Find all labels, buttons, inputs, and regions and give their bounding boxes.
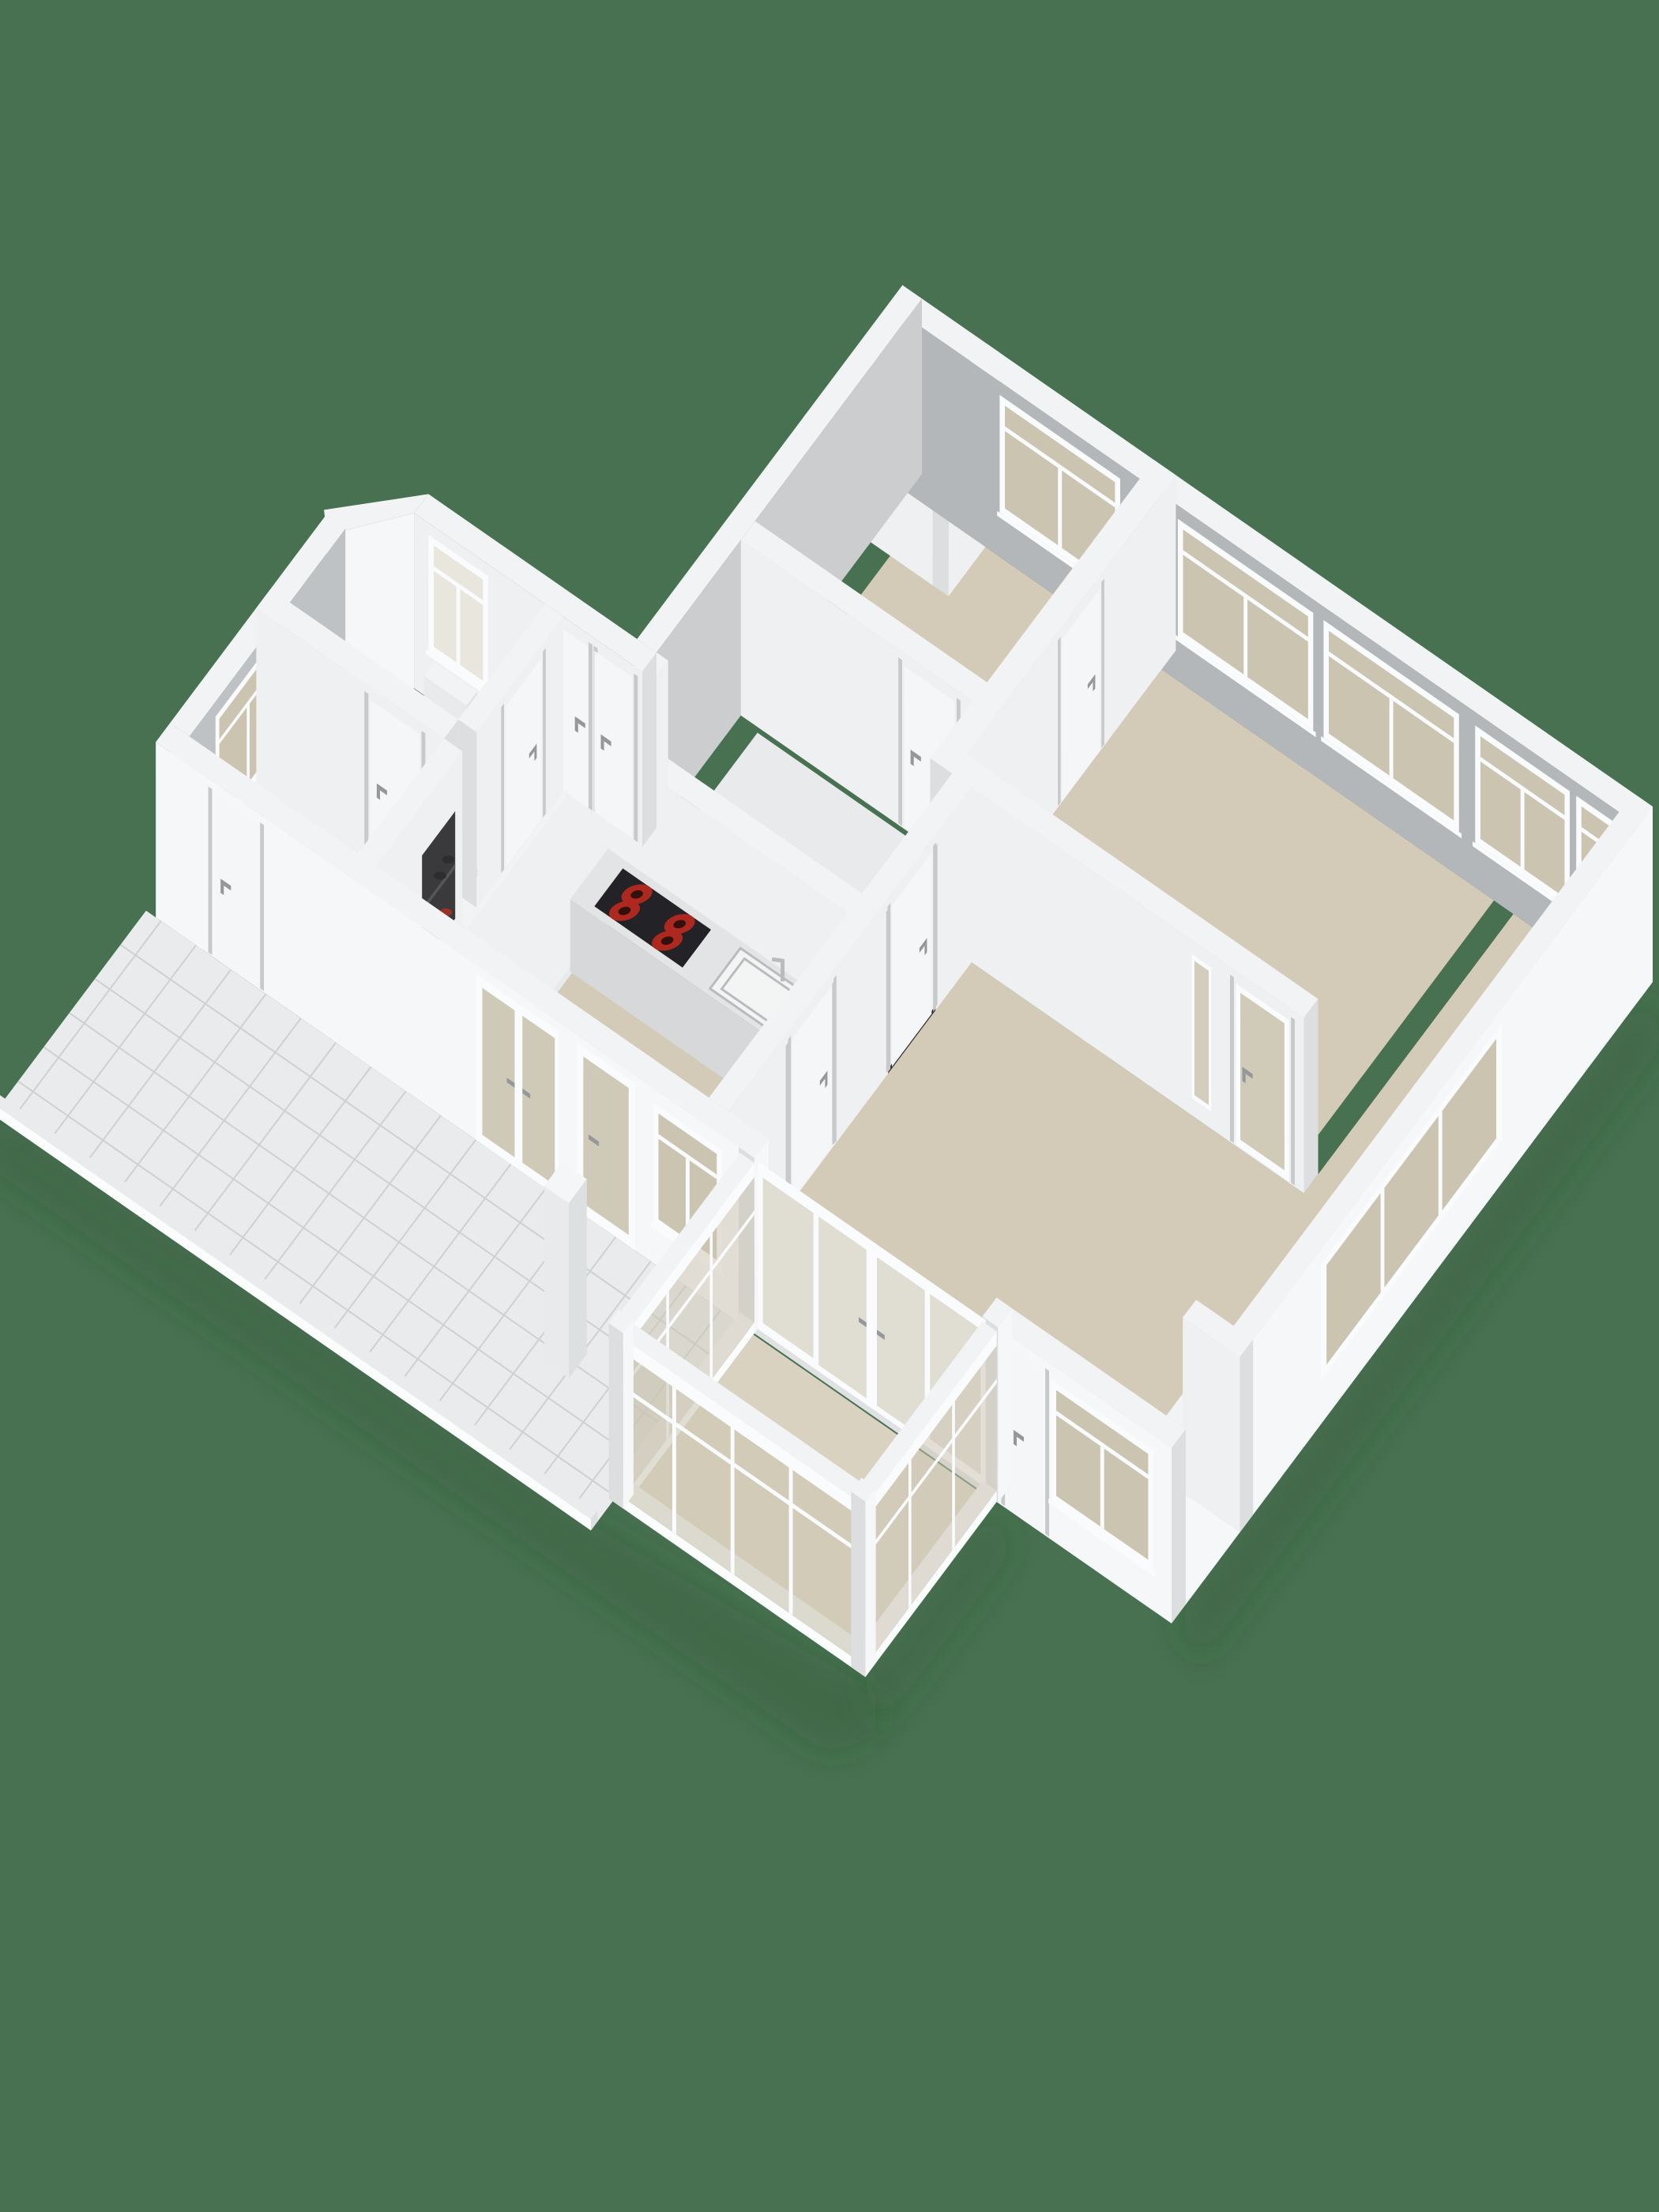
wall-face (623, 1319, 634, 1509)
door-glass (1240, 993, 1285, 1171)
terrace-pillar (544, 1162, 587, 1379)
door-jamb (364, 691, 368, 860)
window-mullion (1100, 1446, 1104, 1529)
window-mullion (246, 704, 250, 785)
door-jamb (260, 822, 264, 991)
sunroom-mullion (710, 1232, 713, 1382)
wall-end (642, 653, 656, 847)
door-jamb (1058, 637, 1061, 807)
sunroom-mullion (952, 1401, 955, 1551)
door-jamb (898, 657, 902, 826)
window-mullion (1243, 597, 1247, 678)
wall-face (544, 1186, 569, 1379)
window-mullion (1390, 698, 1394, 778)
wall-end (1240, 1339, 1253, 1532)
wall-end (609, 1323, 623, 1509)
door-jamb (501, 704, 504, 874)
door-jamb (589, 642, 592, 811)
door-panel (1007, 1346, 1044, 1533)
window-mullion (1521, 789, 1525, 869)
door-jamb (543, 648, 546, 818)
door-panel (594, 651, 632, 838)
shoe-icon (442, 856, 455, 863)
kitchen-french-door-glass (483, 988, 515, 1158)
floorplan-3d-render (0, 0, 1659, 2212)
sunroom-mullion (731, 1427, 735, 1574)
sidelight-glass (1194, 961, 1209, 1105)
door-jamb (1101, 578, 1104, 748)
door-jamb (1291, 1017, 1295, 1185)
door-jamb (1230, 975, 1234, 1143)
door-jamb (209, 786, 213, 954)
door-slot (934, 844, 938, 1010)
wall-end (569, 1179, 587, 1379)
door-slot (832, 979, 836, 1145)
sunroom-mullion (789, 1467, 793, 1615)
wall-end (1304, 999, 1319, 1194)
wall-face (998, 1308, 1012, 1503)
door-jamb (634, 674, 638, 842)
wall-end (1172, 1429, 1186, 1623)
living-alcove-step (1183, 1300, 1253, 1533)
wall-face (865, 1488, 875, 1677)
window-mullion (1058, 468, 1062, 548)
shoe-icon (434, 871, 446, 879)
window-mullion (457, 586, 461, 664)
door-jamb (1045, 1368, 1049, 1537)
sunroom-mullion (672, 1386, 676, 1534)
floorplan-3d-svg (0, 0, 1659, 2212)
sunroom-mullion (908, 1459, 912, 1608)
wall-end (851, 1492, 865, 1677)
kitchen-french-door-glass (522, 1016, 555, 1186)
door-slot (886, 907, 890, 1073)
